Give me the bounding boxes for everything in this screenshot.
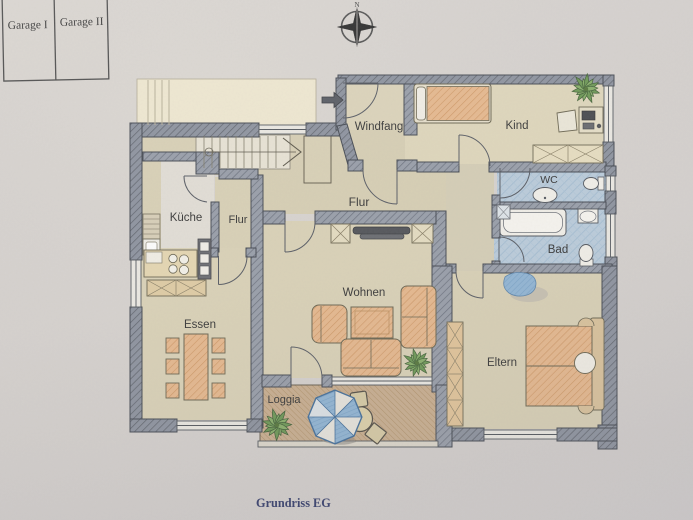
svg-text:Küche: Küche <box>170 212 203 224</box>
svg-text:Bad: Bad <box>548 244 568 256</box>
svg-text:Eltern: Eltern <box>487 357 517 369</box>
svg-text:WC: WC <box>540 174 558 186</box>
svg-text:N: N <box>354 1 359 9</box>
svg-text:Windfang: Windfang <box>355 121 404 133</box>
svg-text:Flur: Flur <box>349 195 370 209</box>
svg-text:Garage I: Garage I <box>8 19 48 32</box>
svg-text:Loggia: Loggia <box>267 394 301 406</box>
svg-text:Grundriss EG: Grundriss EG <box>256 496 331 510</box>
svg-text:Wohnen: Wohnen <box>343 287 386 299</box>
svg-text:Kind: Kind <box>505 120 528 132</box>
svg-text:Flur: Flur <box>229 214 248 226</box>
svg-text:Garage II: Garage II <box>60 16 104 29</box>
svg-text:Essen: Essen <box>184 319 216 331</box>
